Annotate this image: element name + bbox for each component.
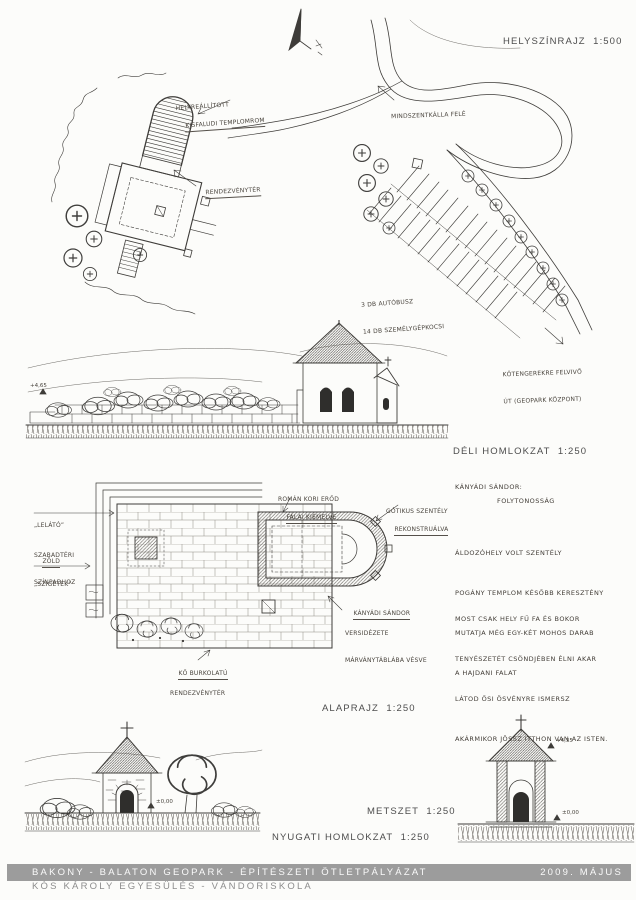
cross-icon [334, 320, 344, 325]
drawing-sheet: HELYSZÍNRAJZ 1:500 DÉLI HOMLOKZAT 1:250 … [0, 0, 636, 900]
annotation-event-square: RENDEZVÉNYTÉR [196, 176, 261, 208]
footer-date: 2009. MÁJUS [540, 867, 623, 878]
level-marker [148, 803, 154, 808]
info-point-marker [412, 158, 423, 169]
annotation-to-mindszentkalla: MINDSZENTKÁLLA FELÉ [390, 92, 466, 140]
tree-cluster [354, 145, 395, 234]
annotation-parking: 3 DB AUTÓBUSZ 14 DB SZEMÉLYGÉPKOCSI [360, 277, 446, 355]
roadside-trees [462, 170, 568, 306]
annotation-roman-walls: ROMÁN KORI ERŐD FALAI KIEMELVE [278, 477, 339, 533]
bushes [45, 385, 280, 417]
annotation-green-islands: ZÖLD „SZIGETEK” [34, 548, 72, 607]
annotation-church-ruin: HELYREÁLLÍTOTT KISFALUDI TEMPLOMROM [174, 80, 266, 142]
poem-title: FOLYTONOSSÁG [497, 495, 555, 508]
level-text-section-top: +4,35 [556, 738, 573, 744]
arched-door [120, 790, 134, 813]
footer-organisation: KÓS KÁROLY EGYESÜLÉS - VÁNDORISKOLA [32, 881, 313, 892]
section-title: METSZET 1:250 [367, 806, 456, 817]
chapel-west-elevation [92, 722, 162, 813]
ground-hatch [26, 425, 448, 438]
annotation-gothic-sanctuary: GÓTIKUS SZENTÉLY REKONSTRUÁLVA [386, 489, 448, 545]
annotation-stone-paving: KŐ BURKOLATÚ RENDEZVÉNYTÉR [170, 660, 228, 716]
west-ground [25, 813, 260, 831]
cross-icon [385, 357, 391, 366]
annotation-poem-plaque: KÁNYÁDI SÁNDOR VERSIDÉZETE MÁRVÁNYTÁBLÁB… [345, 600, 427, 683]
north-arrow-icon [289, 9, 322, 55]
level-text-south: +4,65 [30, 383, 47, 389]
level-text-section-zero: ±0,00 [562, 810, 579, 816]
green-island-beds [86, 585, 103, 617]
floor-plan-title: ALAPRAJZ 1:250 [322, 703, 416, 714]
arched-niche [513, 792, 529, 822]
footer-competition-title: BAKONY - BALATON GEOPARK - ÉPÍTÉSZETI ÖT… [32, 867, 428, 878]
poem-stanza-2: MOST CSAK HELY FŰ FA ÉS BOKOR TENYÉSZETÉ… [455, 586, 608, 774]
site-trees-left [64, 205, 147, 280]
site-plan-title: HELYSZÍNRAJZ 1:500 [503, 36, 622, 47]
level-text-west: ±0,00 [156, 799, 173, 805]
south-elevation-title: DÉLI HOMLOKZAT 1:250 [453, 446, 587, 457]
terrain-scribbles [52, 73, 195, 314]
gothic-window [320, 388, 332, 413]
annotation-road-note: KŐTENGEREKRE FELVIVŐ ÚT (GEOPARK KÖZPONT… [502, 350, 584, 425]
poem-author: KÁNYÁDI SÁNDOR: [455, 481, 522, 494]
west-elevation-title: NYUGATI HOMLOKZAT 1:250 [272, 832, 430, 843]
cross-icon [121, 722, 133, 739]
gothic-window [342, 388, 354, 413]
